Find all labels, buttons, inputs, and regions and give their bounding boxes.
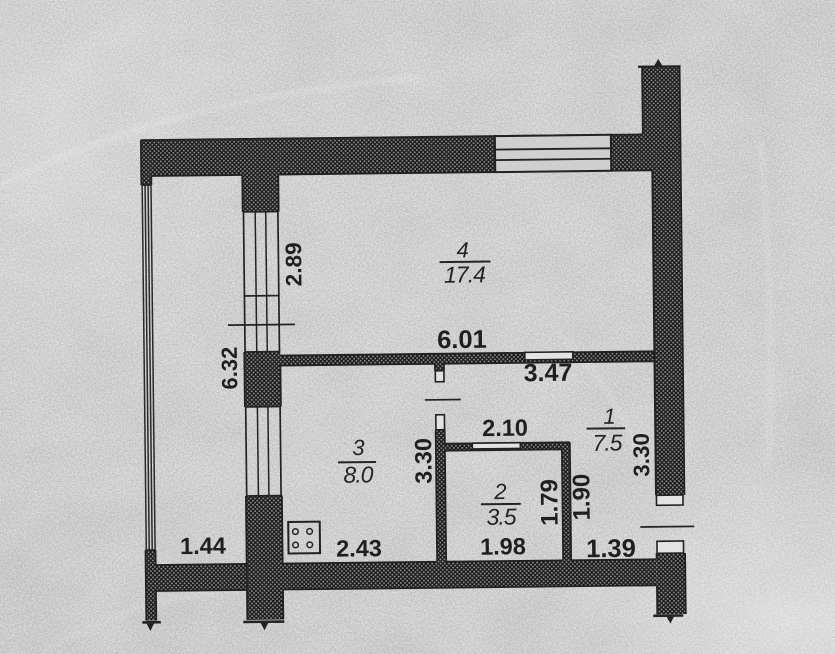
svg-text:1.79: 1.79: [536, 479, 564, 526]
svg-text:2.10: 2.10: [482, 415, 528, 442]
svg-text:3: 3: [352, 435, 365, 460]
svg-text:1.39: 1.39: [586, 535, 636, 564]
svg-text:4: 4: [456, 237, 468, 262]
svg-text:7.5: 7.5: [592, 429, 622, 455]
svg-text:3.30: 3.30: [410, 438, 437, 484]
svg-text:6.01: 6.01: [437, 326, 487, 355]
svg-text:1: 1: [603, 404, 615, 429]
svg-text:8.0: 8.0: [343, 461, 373, 487]
svg-text:1.98: 1.98: [480, 533, 526, 560]
svg-text:2.89: 2.89: [281, 242, 306, 286]
svg-text:2: 2: [493, 479, 506, 504]
svg-text:3.47: 3.47: [524, 359, 573, 388]
svg-text:6.32: 6.32: [217, 347, 242, 390]
svg-text:17.4: 17.4: [444, 261, 485, 287]
svg-text:2.43: 2.43: [336, 535, 382, 562]
svg-text:3.30: 3.30: [629, 433, 654, 477]
svg-text:1.90: 1.90: [568, 474, 596, 521]
svg-text:1.44: 1.44: [180, 533, 226, 560]
svg-text:3.5: 3.5: [486, 503, 516, 529]
